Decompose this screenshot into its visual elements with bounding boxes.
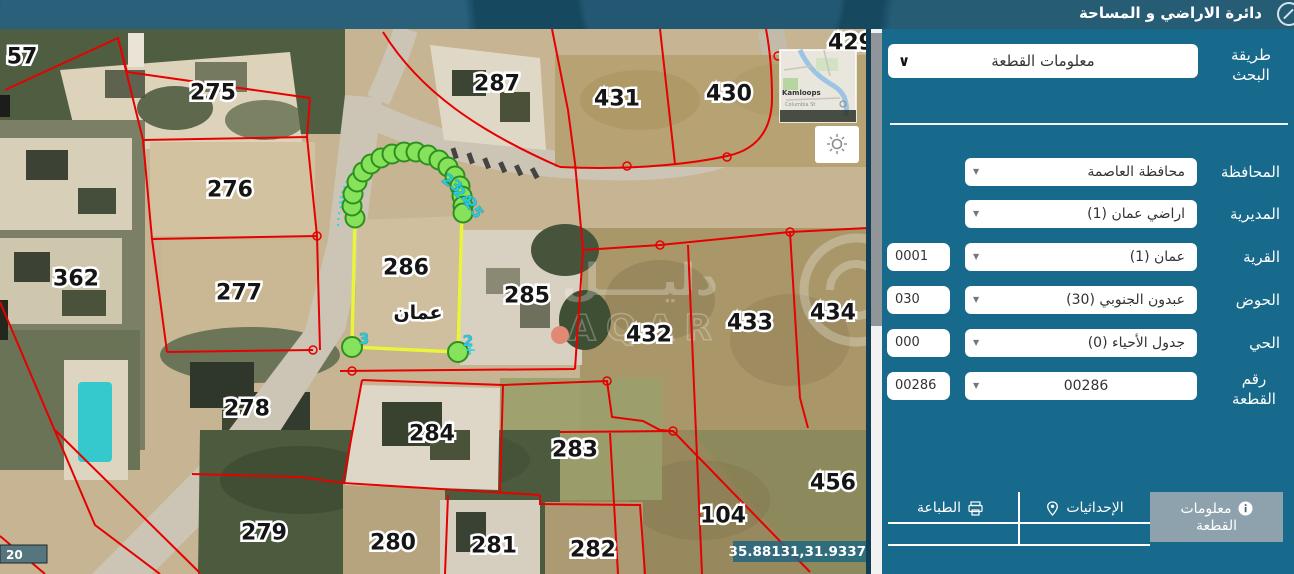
basin-code-field[interactable]: 030 <box>887 286 950 314</box>
tab-parcel-info-label-line1: معلومات <box>1180 501 1231 517</box>
village-code-field[interactable]: 0001 <box>887 243 950 271</box>
search-method-value: معلومات القطعة <box>991 52 1094 70</box>
parcel-label-285: 285 <box>504 284 550 309</box>
tab-coordinates[interactable]: الإحداثيات <box>1024 492 1146 524</box>
agency-logo-icon <box>1277 2 1294 26</box>
village-value: عمان (1) <box>1130 249 1185 265</box>
coordinates-value: 35.88131,31.93379 <box>729 544 871 560</box>
parcel-label-456: 456 <box>810 471 856 496</box>
neighborhood-value: جدول الأحياء (0) <box>1088 335 1185 351</box>
parcel-label-282: 282 <box>570 538 616 563</box>
governorate-select[interactable]: ▼ محافظة العاصمة <box>965 158 1197 186</box>
basin-select[interactable]: ▼ عبدون الجنوبي (30) <box>965 286 1197 314</box>
scale-value: 20 <box>6 548 23 562</box>
location-pin-icon <box>1046 501 1059 516</box>
section-divider <box>890 123 1288 125</box>
minimap-city-label: Kamloops <box>782 89 821 97</box>
parcel-label-434: 434 <box>810 301 856 326</box>
parcel-label-283: 283 <box>552 438 598 463</box>
basin-value: عبدون الجنوبي (30) <box>1066 292 1185 308</box>
map-canvas[interactable]: دليــــل AQAR <box>0 29 871 574</box>
corner-vertex-number: 3 <box>359 330 369 348</box>
directorate-select[interactable]: ▼ اراضي عمان (1) <box>965 200 1197 228</box>
directorate-value: اراضي عمان (1) <box>1087 206 1185 222</box>
dropdown-arrow-icon: ▼ <box>973 158 979 186</box>
parcel-label-432: 432 <box>626 323 672 348</box>
chevron-down-icon: ∨ <box>898 44 910 78</box>
parcel-label-276: 276 <box>207 178 253 203</box>
parcel-label-430: 430 <box>706 82 752 107</box>
neighborhood-label: الحي <box>1249 333 1280 353</box>
coordinates-readout: 35.88131,31.93379 <box>729 541 871 562</box>
map-viewport[interactable]: دليــــل AQAR <box>0 29 871 574</box>
parcel-label-104: 104 <box>700 504 746 529</box>
scrollbar-thumb[interactable] <box>871 33 882 326</box>
village-select[interactable]: ▼ عمان (1) <box>965 243 1197 271</box>
search-method-select[interactable]: ∨ معلومات القطعة <box>888 44 1198 78</box>
parcel-number-code-field[interactable]: 00286 <box>887 372 950 400</box>
dropdown-arrow-icon: ▼ <box>973 200 979 228</box>
scale-indicator: 20 <box>0 545 47 563</box>
app-title: دائرة الاراضي و المساحة <box>1079 4 1262 22</box>
tab-coordinates-label: الإحداثيات <box>1066 500 1123 516</box>
tab-divider <box>1018 492 1020 545</box>
village-label: القرية <box>1243 247 1280 267</box>
panel-scrollbar[interactable] <box>871 29 882 574</box>
dropdown-arrow-icon: ▼ <box>973 329 979 357</box>
governorate-value: محافظة العاصمة <box>1087 164 1185 180</box>
search-panel: طريقة البحث ∨ معلومات القطعة المحافظة ▼ … <box>882 29 1294 574</box>
neighborhood-select[interactable]: ▼ جدول الأحياء (0) <box>965 329 1197 357</box>
tab-parcel-info[interactable]: معلومات القطعة <box>1150 492 1283 542</box>
top-header-bar: دائرة الاراضي و المساحة <box>0 0 1294 30</box>
tab-underline-top <box>888 522 1150 524</box>
directorate-label: المديرية <box>1230 204 1280 224</box>
minimap-street-label: Columbia St <box>785 102 815 108</box>
parcel-label-284: 284 <box>409 422 455 447</box>
dropdown-arrow-icon: ▼ <box>973 243 979 271</box>
basemap-toggle-button[interactable] <box>815 126 859 163</box>
parcel-label-281: 281 <box>471 534 517 559</box>
printer-icon <box>968 501 983 516</box>
parcel-label-57: 57 <box>7 45 38 70</box>
app-window: دائرة الاراضي و المساحة <box>0 0 1294 574</box>
parcel-label-433: 433 <box>727 311 773 336</box>
minimap-overview[interactable]: Kamloops Columbia St <box>780 50 856 122</box>
selected-parcel-name: عمان <box>393 302 442 324</box>
parcel-number-value: 00286 <box>1064 378 1109 394</box>
tab-underline-bottom <box>888 544 1150 546</box>
parcel-label-275: 275 <box>190 81 236 106</box>
parcel-label-362: 362 <box>53 267 99 292</box>
selected-parcel-number: 286 <box>383 256 429 281</box>
watermark-arabic: دليــــل <box>562 255 719 306</box>
parcel-label-278: 278 <box>224 397 270 422</box>
dropdown-arrow-icon: ▼ <box>973 372 979 400</box>
basin-label: الحوض <box>1236 290 1280 310</box>
parcel-label-287: 287 <box>474 72 520 97</box>
tab-print[interactable]: الطباعة <box>888 492 1012 524</box>
neighborhood-code-field[interactable]: 000 <box>887 329 950 357</box>
tab-print-label: الطباعة <box>917 500 961 516</box>
parcel-label-431: 431 <box>594 87 640 112</box>
search-method-label: طريقة البحث <box>1218 45 1284 85</box>
parcel-label-280: 280 <box>370 531 416 556</box>
parcel-number-select[interactable]: ▼ 00286 <box>965 372 1197 400</box>
info-icon <box>1238 501 1253 516</box>
tab-parcel-info-label-line2: القطعة <box>1196 518 1237 534</box>
governorate-label: المحافظة <box>1221 162 1280 182</box>
dropdown-arrow-icon: ▼ <box>973 286 979 314</box>
parcel-label-279: 279 <box>241 521 287 546</box>
parcel-label-277: 277 <box>216 281 262 306</box>
corner-vertex-number: 2 <box>463 332 473 350</box>
parcel-number-label: رقم القطعة <box>1228 369 1280 409</box>
